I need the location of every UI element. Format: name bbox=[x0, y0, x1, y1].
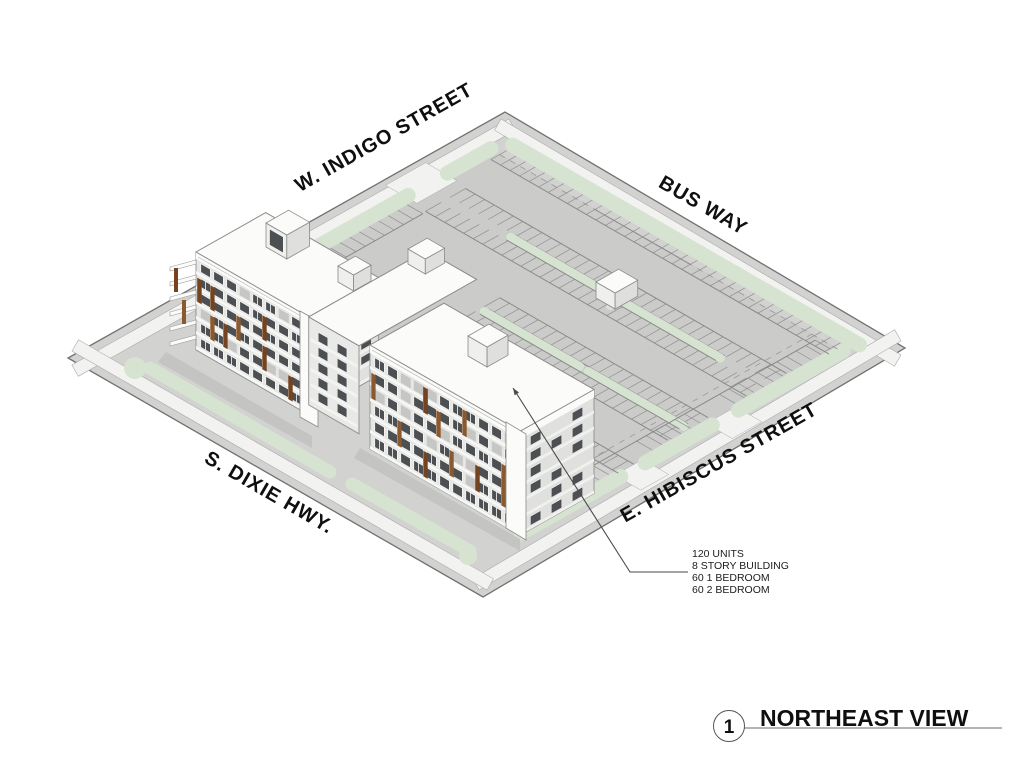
figure-number: 1 bbox=[724, 717, 735, 738]
annotation-line-units: 120 UNITS bbox=[692, 548, 744, 560]
axonometric-site-rendering: W. INDIGO STREET BUS WAY S. DIXIE HWY. E… bbox=[0, 0, 1024, 780]
annotation-line-2br: 60 2 BEDROOM bbox=[692, 584, 770, 596]
sheet: W. INDIGO STREET BUS WAY S. DIXIE HWY. E… bbox=[0, 0, 1024, 780]
title-block: 1 NORTHEAST VIEW bbox=[714, 705, 1003, 742]
annotation-line-1br: 60 1 BEDROOM bbox=[692, 572, 770, 584]
annotation-line-stories: 8 STORY BUILDING bbox=[692, 560, 789, 572]
building-annotation: 120 UNITS 8 STORY BUILDING 60 1 BEDROOM … bbox=[692, 548, 789, 596]
figure-title: NORTHEAST VIEW bbox=[760, 705, 969, 731]
